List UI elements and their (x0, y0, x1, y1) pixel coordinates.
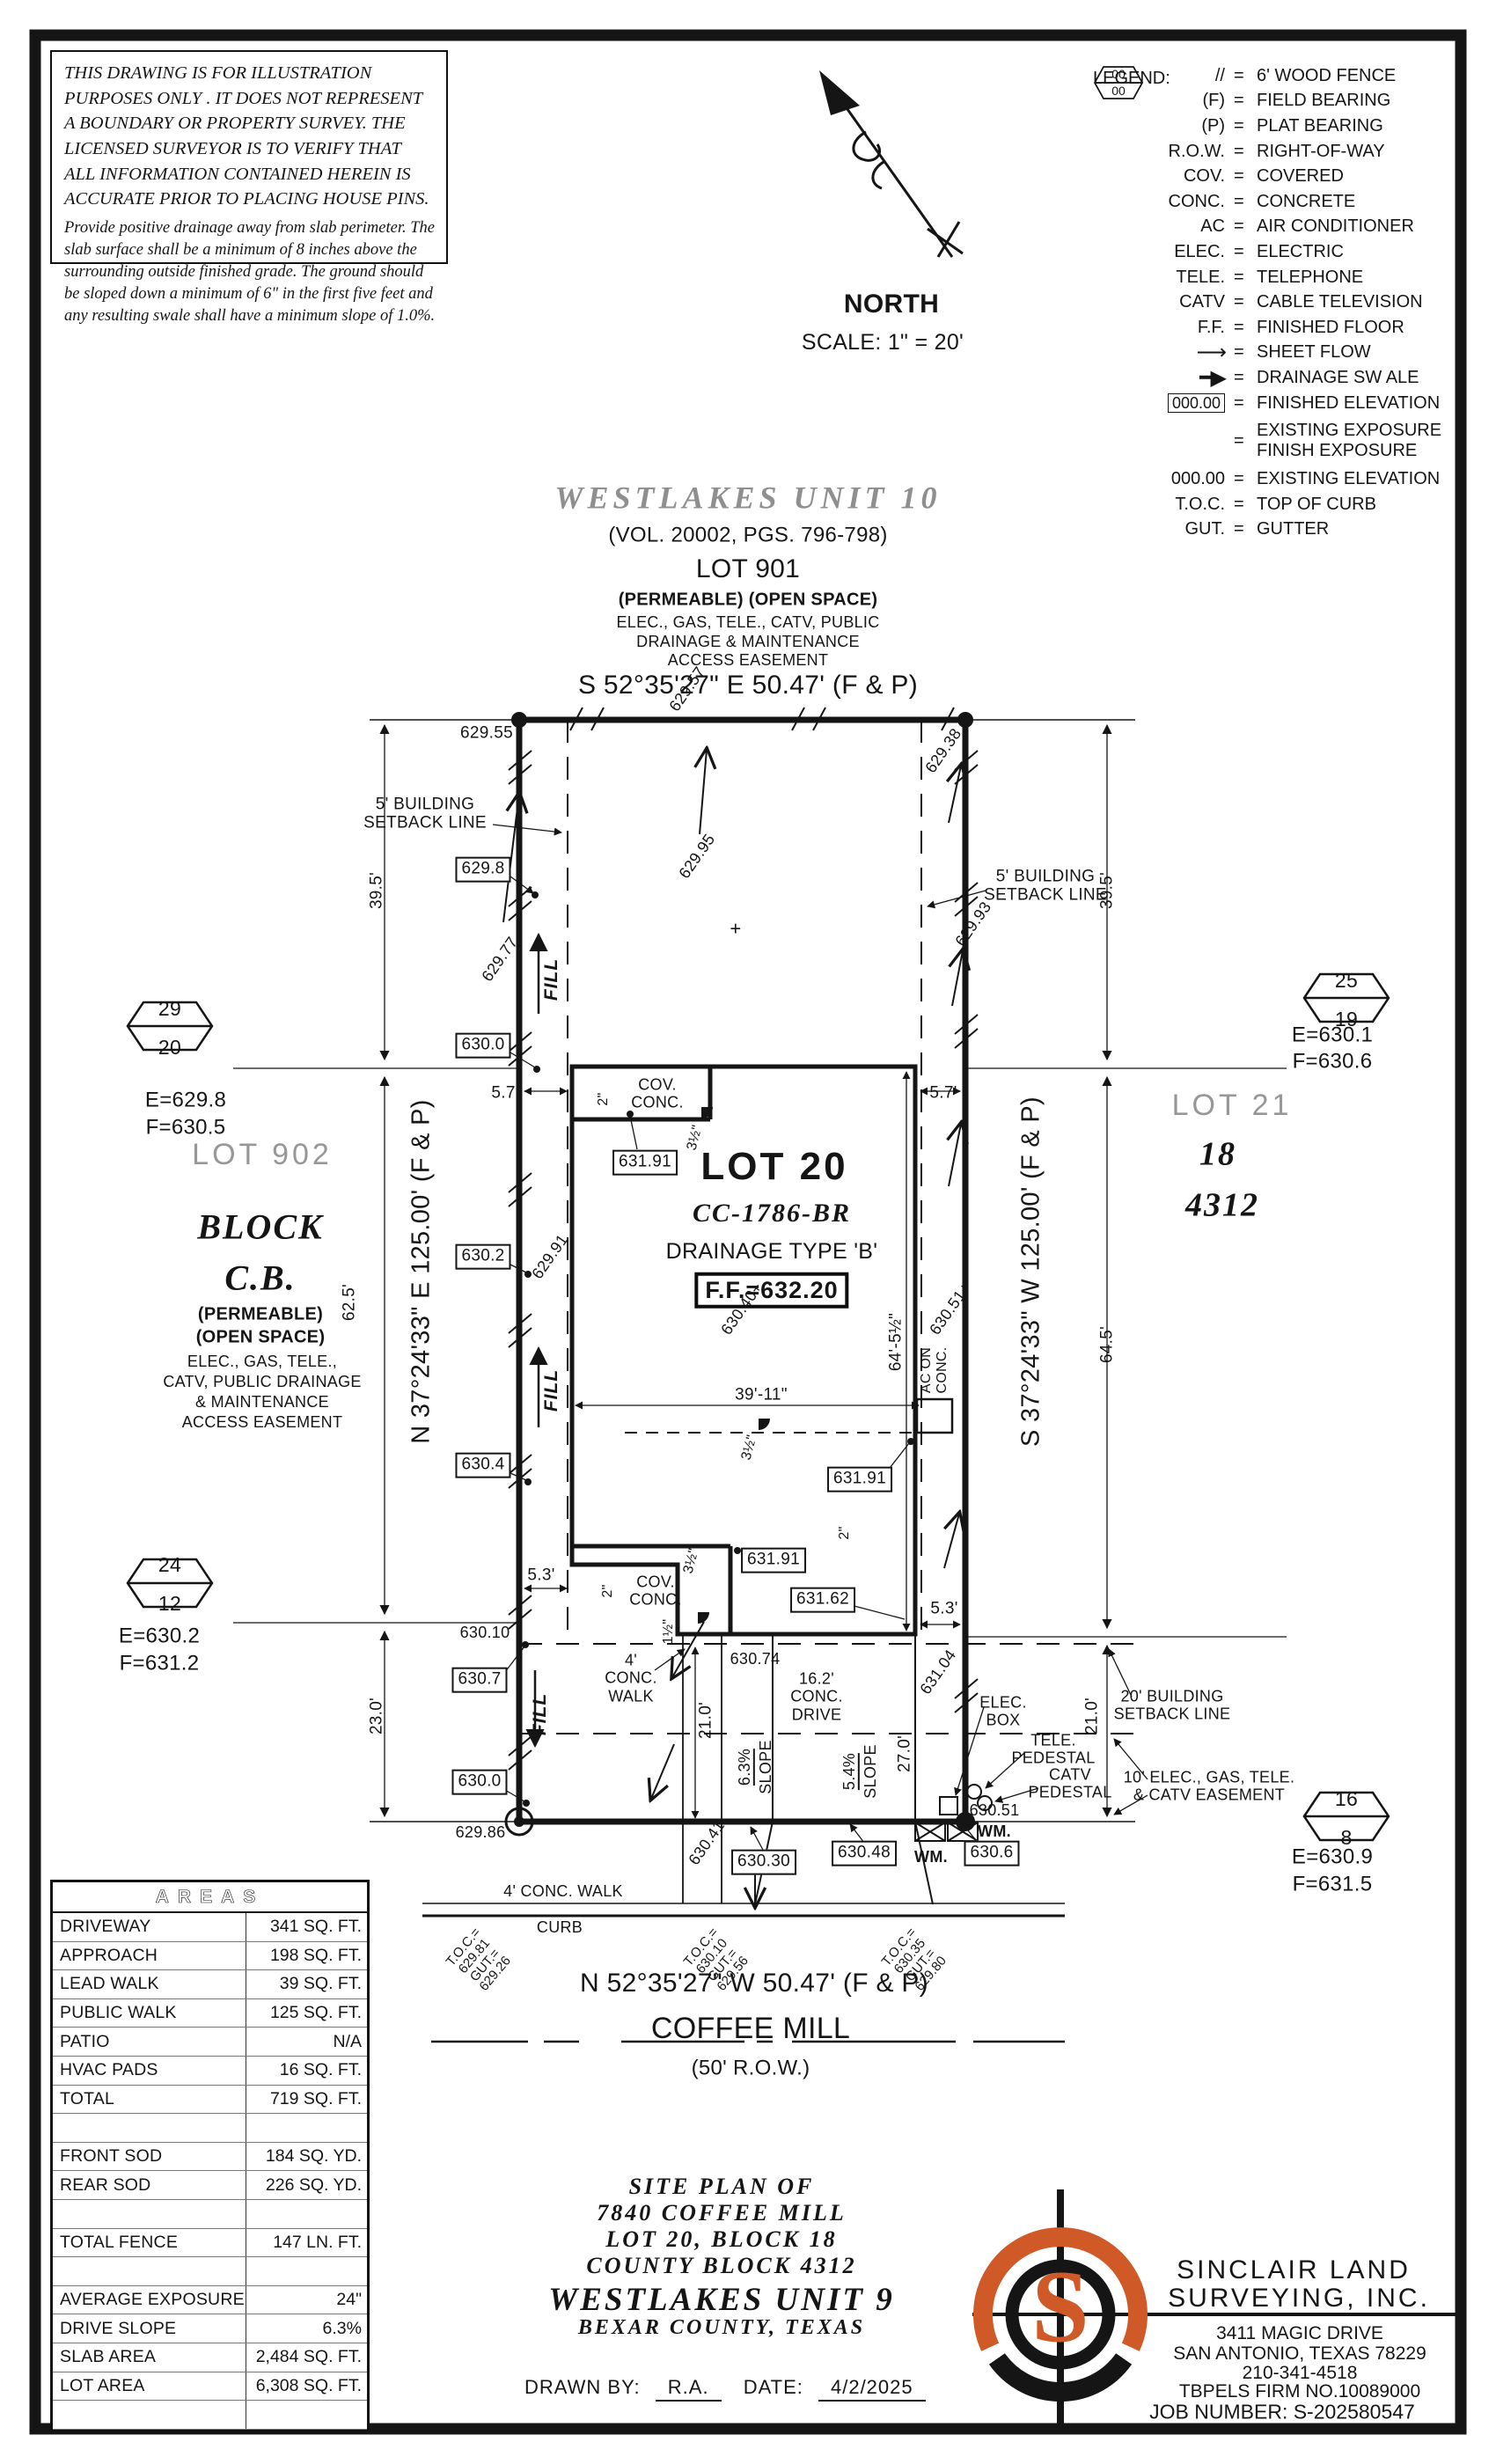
plan-label: (PERMEABLE) (OPEN SPACE) (619, 590, 878, 611)
plan-label: 630.0 (455, 1033, 510, 1059)
areas-row: APPROACH198 SQ. FT. (53, 1942, 367, 1971)
legend-row: R.O.W.=RIGHT-OF-WAY (1093, 139, 1480, 165)
telephone-pedestal-icon (967, 1785, 981, 1799)
areas-row (53, 2114, 367, 2143)
bearing-west-line: N 37°24'33" E 125.00' (F & P) (407, 1099, 436, 1443)
electric-box-icon (940, 1797, 957, 1815)
areas-row: DRIVEWAY341 SQ. FT. (53, 1913, 367, 1942)
legend-row: F.F.=FINISHED FLOOR (1093, 315, 1480, 341)
drawn-by-value: R.A. (656, 2376, 722, 2402)
plan-label: F=631.5 (1293, 1872, 1373, 1896)
plan-label: 24 (158, 1553, 181, 1576)
plan-label: 25 (1335, 969, 1358, 992)
lot-902-label: LOT 902 (192, 1138, 333, 1171)
plat-volume: (VOL. 20002, PGS. 796-798) (608, 523, 887, 546)
legend-row: ⟶=SHEET FLOW (1093, 341, 1480, 366)
areas-row: LOT AREA6,308 SQ. FT. (53, 2372, 367, 2402)
plan-label: 630.48 (832, 1841, 897, 1866)
plan-label: WM. (914, 1848, 948, 1866)
plan-label: 630.6 (964, 1841, 1019, 1866)
date-label: DATE: (744, 2376, 803, 2398)
plan-label: 629.86 (456, 1823, 506, 1841)
plan-label: CURB (537, 1918, 583, 1936)
plan-label: 630.0 (451, 1770, 507, 1795)
plan-label: 4' CONC. WALK (605, 1652, 657, 1705)
plan-label: 5.7' (929, 1083, 957, 1102)
plan-label: 630.7 (451, 1668, 507, 1693)
plan-label: 631.62 (790, 1588, 855, 1613)
plan-label: 39.5' (1097, 872, 1116, 909)
plan-label: 10' ELEC., GAS, TELE. & CATV EASEMENT (1124, 1769, 1295, 1805)
drainage-type: DRAINAGE TYPE 'B' (666, 1239, 878, 1264)
plan-label: 18 (1199, 1136, 1236, 1174)
legend-row: 00 00=EXISTING EXPOSURE FINISH EXPOSURE (1093, 415, 1480, 466)
plan-label: 5.3' (527, 1566, 554, 1584)
legend-row: GUT.=GUTTER (1093, 517, 1480, 543)
plan-label: 629.55 (460, 723, 513, 742)
areas-row: REAR SOD226 SQ. YD. (53, 2171, 367, 2200)
sheet-flow-icon: ⟶ (1093, 340, 1234, 365)
plan-label: COV. CONC. (631, 1076, 684, 1112)
plan-label: FILL (530, 1693, 551, 1735)
plan-label: 5.4% (840, 1753, 860, 1790)
plan-label: TELE. PEDESTAL (1011, 1732, 1095, 1768)
areas-row: FRONT SOD184 SQ. YD. (53, 2143, 367, 2172)
plan-label: 631.91 (827, 1467, 892, 1492)
plan-label: 64.5' (1097, 1326, 1116, 1363)
plan-label: 62.5' (340, 1284, 358, 1321)
drainage-note: Provide positive drainage away from slab… (64, 217, 436, 327)
legend-row: 000.00=EXISTING ELEVATION (1093, 466, 1480, 492)
plan-label: AC ON CONC. (919, 1346, 950, 1393)
title-block-line: WESTLAKES UNIT 9 (548, 2281, 894, 2319)
plan-label: 64'-5½" (886, 1313, 905, 1371)
plan-label: F=630.5 (146, 1115, 226, 1139)
plan-label: CATV PEDESTAL (1028, 1766, 1111, 1802)
plan-label: 5.7' (491, 1083, 518, 1102)
plan-label: 630.4 (455, 1453, 510, 1478)
job-number: JOB NUMBER: S-202580547 (1149, 2401, 1415, 2424)
north-label: NORTH (844, 290, 939, 319)
finished-floor-elevation: F.F.=632.20 (694, 1272, 848, 1309)
title-block-line: 7840 COFFEE MILL (597, 2200, 847, 2226)
plan-label: ELEC., GAS, TELE., CATV, PUBLIC (616, 613, 879, 631)
plan-label: SLOPE (862, 1744, 879, 1799)
lot-901-label: LOT 901 (696, 554, 800, 584)
plan-label: 2" (837, 1526, 853, 1539)
plan-label: + (730, 919, 741, 941)
plan-label: F=630.6 (1293, 1049, 1373, 1073)
plan-label: 631.91 (741, 1548, 806, 1573)
svg-text:00: 00 (1111, 84, 1126, 98)
plan-label: (PERMEABLE) (198, 1305, 323, 1325)
plan-label: 16.2' CONC. DRIVE (790, 1670, 843, 1724)
legend-row: CATV=CABLE TELEVISION (1093, 290, 1480, 315)
plan-label: CATV, PUBLIC DRAINAGE (163, 1373, 361, 1390)
plan-label: FILL (541, 1369, 562, 1412)
bearing-south-line: N 52°35'27" W 50.47' (F & P) (580, 1969, 928, 1998)
drainage-swale-arrows (535, 935, 539, 1746)
plan-label: 630.51 (970, 1801, 1020, 1819)
legend-row: TELE.=TELEPHONE (1093, 265, 1480, 290)
plan-label: 630.30 (731, 1850, 796, 1875)
areas-table: AREAS DRIVEWAY341 SQ. FT.APPROACH198 SQ.… (50, 1880, 370, 2432)
legend-row: AC=AIR CONDITIONER (1093, 215, 1480, 240)
plan-label: 1½" (661, 1619, 677, 1645)
legend-row: ELEC.=ELECTRIC (1093, 239, 1480, 265)
plan-label: 630.74 (730, 1650, 781, 1668)
plan-label: 5.3' (930, 1599, 957, 1617)
legend-row: 000.00=FINISHED ELEVATION (1093, 391, 1480, 416)
areas-row: PATION/A (53, 2028, 367, 2057)
plan-number: CC-1786-BR (693, 1199, 851, 1228)
areas-row: AVERAGE EXPOSURE24" (53, 2286, 367, 2315)
plan-label: C.B. (224, 1258, 296, 1297)
plan-label: E=629.8 (145, 1088, 226, 1111)
plan-label: 630.10 (460, 1624, 510, 1641)
date-value: 4/2/2025 (818, 2376, 926, 2402)
plan-label: ACCESS EASEMENT (182, 1413, 343, 1431)
plan-label: 629.8 (455, 857, 510, 883)
areas-row: DRIVE SLOPE6.3% (53, 2314, 367, 2343)
title-block-line: SITE PLAN OF (629, 2174, 815, 2200)
areas-row: TOTAL719 SQ. FT. (53, 2086, 367, 2115)
plan-label: SLOPE (757, 1740, 774, 1794)
drawn-by-block: DRAWN BY: R.A. DATE: 4/2/2025 (524, 2376, 942, 2399)
plan-label: FILL (541, 958, 562, 1001)
drainage-swale-icon: ━▶ (1093, 365, 1234, 391)
lot-21-label: LOT 21 (1172, 1089, 1293, 1122)
plan-label: WM. (978, 1822, 1011, 1840)
areas-row (53, 2257, 367, 2286)
plan-label: 39.5' (367, 872, 385, 909)
plan-label: 12 (158, 1592, 181, 1615)
title-block-line: COUNTY BLOCK 4312 (586, 2253, 856, 2279)
plan-label: 16 (1335, 1787, 1358, 1810)
surveyor-name: SINCLAIR LAND (1177, 2255, 1411, 2285)
plan-label: BLOCK (197, 1206, 323, 1246)
legend-row: (F)=FIELD BEARING (1093, 89, 1480, 114)
drawn-by-label: DRAWN BY: (524, 2376, 641, 2398)
areas-row (53, 2200, 367, 2229)
plan-label: 29 (158, 997, 181, 1020)
scale-label: SCALE: 1" = 20' (802, 330, 964, 355)
disclaimer-text: THIS DRAWING IS FOR ILLUSTRATION PURPOSE… (64, 61, 436, 212)
plan-label: E=630.2 (119, 1624, 200, 1647)
plan-label: 631.91 (612, 1150, 678, 1176)
bearing-east-line: S 37°24'33" W 125.00' (F & P) (1017, 1096, 1046, 1447)
plan-label: 27.0' (895, 1735, 913, 1772)
areas-row: LEAD WALK39 SQ. FT. (53, 1970, 367, 1999)
plan-label: (OPEN SPACE) (196, 1328, 326, 1348)
areas-row: HVAC PADS16 SQ. FT. (53, 2057, 367, 2086)
legend: //=6' WOOD FENCE(F)=FIELD BEARING(P)=PLA… (1093, 63, 1480, 542)
plan-label: COV. CONC. (629, 1573, 682, 1610)
areas-table-title: AREAS (53, 1882, 367, 1913)
plan-label: 2" (596, 1092, 612, 1105)
plan-label: 5' BUILDING SETBACK LINE (984, 868, 1107, 906)
plan-label: 630.2 (455, 1244, 510, 1270)
north-arrow-icon (819, 70, 963, 257)
areas-row: PUBLIC WALK125 SQ. FT. (53, 1999, 367, 2028)
bearing-north-line: S 52°35'27" E 50.47' (F & P) (578, 671, 918, 700)
lot-20-label: LOT 20 (700, 1145, 847, 1189)
plan-label: & MAINTENANCE (195, 1393, 329, 1411)
logo-s-letter: S (1031, 2248, 1089, 2367)
plan-label: 20 (158, 1036, 181, 1059)
plan-label: 20' BUILDING SETBACK LINE (1114, 1688, 1231, 1724)
disclaimer-box: THIS DRAWING IS FOR ILLUSTRATION PURPOSE… (50, 50, 448, 264)
surveyor-firm: TBPELS FIRM NO.10089000 (1179, 2381, 1420, 2402)
plan-label: 21.0' (1082, 1698, 1101, 1734)
legend-row: (P)=PLAT BEARING (1093, 114, 1480, 139)
plan-label: DRAINAGE & MAINTENANCE (636, 633, 860, 650)
plan-label: 4312 (1185, 1187, 1259, 1225)
plan-label: 21.0' (696, 1702, 715, 1739)
legend-row: ━▶=DRAINAGE SW ALE (1093, 365, 1480, 391)
title-block-line: BEXAR COUNTY, TEXAS (578, 2316, 865, 2340)
subdivision-title: WESTLAKES UNIT 10 (554, 480, 941, 517)
legend-row: COV.=COVERED (1093, 164, 1480, 189)
legend-row: //=6' WOOD FENCE (1093, 63, 1480, 89)
plan-label: 6.3% (736, 1749, 755, 1786)
areas-row (53, 2401, 367, 2430)
plan-label: 23.0' (367, 1698, 385, 1734)
plan-label: 39'-11" (735, 1385, 788, 1404)
plan-label: 4' CONC. WALK (503, 1882, 623, 1900)
plan-label: ELEC., GAS, TELE., (187, 1353, 337, 1370)
street-name: COFFEE MILL (651, 2012, 850, 2045)
surveyor-name2: SURVEYING, INC. (1168, 2284, 1430, 2314)
plan-label: E=630.1 (1292, 1023, 1373, 1046)
exposure-hex-icon: 00 00 (1093, 63, 1144, 102)
plan-label: 5' BUILDING SETBACK LINE (363, 796, 487, 833)
surveyor-address2: SAN ANTONIO, TEXAS 78229 (1173, 2343, 1426, 2365)
svg-text:00: 00 (1111, 67, 1126, 81)
street-row: (50' R.O.W.) (692, 2056, 810, 2079)
title-block-line: LOT 20, BLOCK 18 (605, 2226, 837, 2253)
plan-label: 2" (600, 1584, 616, 1597)
legend-row: CONC.=CONCRETE (1093, 189, 1480, 215)
plan-label: E=630.9 (1292, 1844, 1373, 1868)
surveyor-address1: 3411 MAGIC DRIVE (1216, 2323, 1383, 2344)
plan-label: F=631.2 (120, 1651, 200, 1675)
areas-row: SLAB AREA2,484 SQ. FT. (53, 2343, 367, 2372)
site-plan-page: THIS DRAWING IS FOR ILLUSTRATION PURPOSE… (0, 0, 1496, 2464)
legend-row: T.O.C.=TOP OF CURB (1093, 492, 1480, 517)
plan-label: ELEC. BOX (979, 1694, 1027, 1730)
areas-row: TOTAL FENCE147 LN. FT. (53, 2229, 367, 2258)
